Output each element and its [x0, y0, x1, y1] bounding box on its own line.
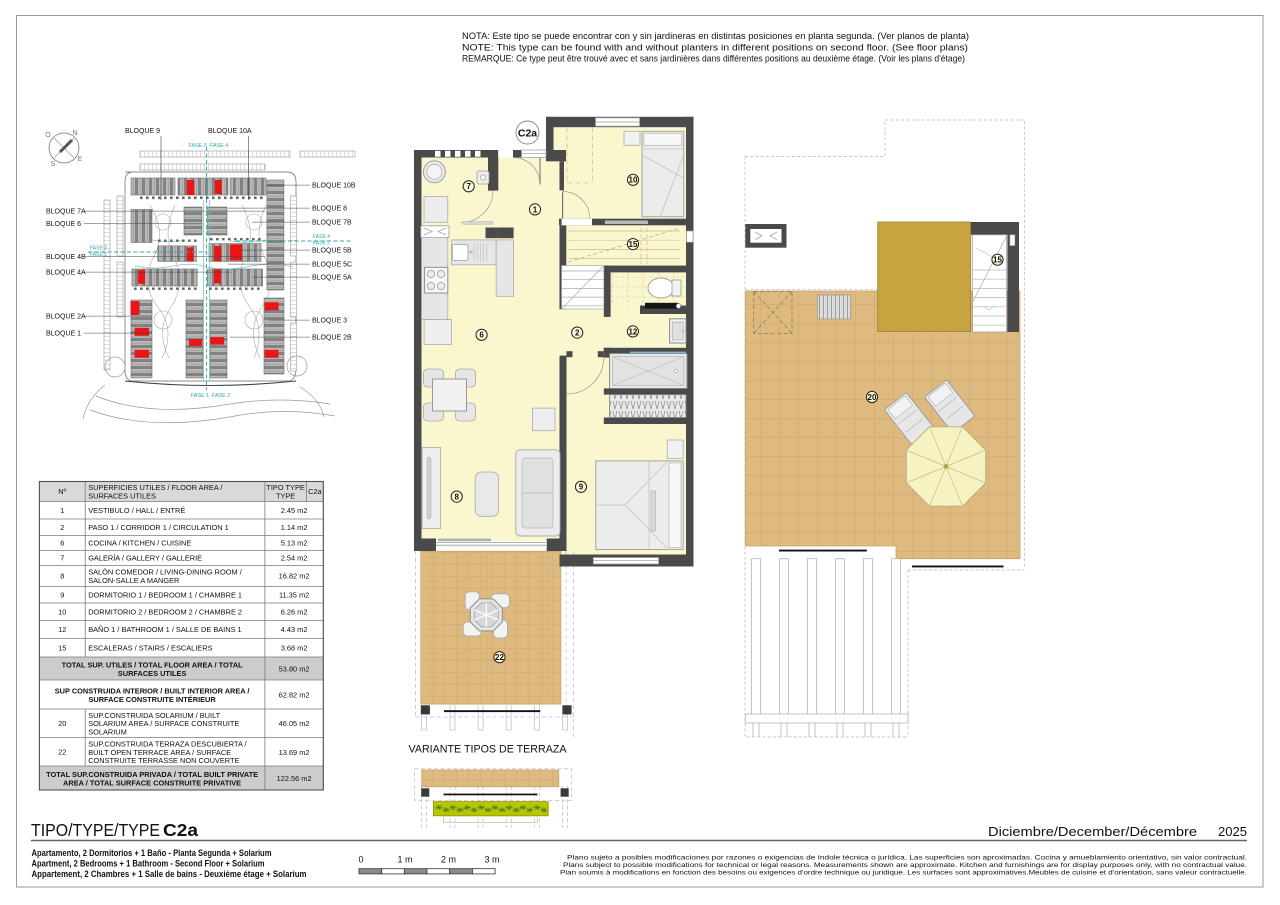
svg-text:9: 9 [60, 590, 64, 599]
svg-text:15: 15 [58, 643, 66, 652]
svg-text:C2a: C2a [163, 820, 198, 840]
svg-text:BLOQUE 10B: BLOQUE 10B [312, 183, 356, 190]
svg-text:SURFACES UTILES: SURFACES UTILES [88, 492, 156, 501]
svg-text:10: 10 [629, 176, 638, 185]
svg-text:9: 9 [579, 483, 584, 492]
svg-text:Apartamento, 2 Dormitorios + 1: Apartamento, 2 Dormitorios + 1 Baño - Pl… [32, 848, 272, 858]
svg-text:FASE 4: FASE 4 [210, 143, 228, 149]
svg-text:Plans subject to possible modi: Plans subject to possible modifications … [563, 862, 1247, 869]
svg-text:GALERÍA / GALLERY / GALLERIE: GALERÍA / GALLERY / GALLERIE [88, 554, 202, 563]
svg-text:VESTIBULO / HALL / ENTRÉ: VESTIBULO / HALL / ENTRÉ [88, 506, 185, 515]
svg-text:4.43 m2: 4.43 m2 [281, 625, 308, 634]
svg-text:5.13 m2: 5.13 m2 [281, 539, 308, 548]
svg-text:TYPE: TYPE [276, 492, 295, 501]
svg-text:Apartment, 2 Bedrooms + 1 Bath: Apartment, 2 Bedrooms + 1 Bathroom - Sec… [32, 859, 265, 869]
svg-text:11.35 m2: 11.35 m2 [279, 590, 309, 599]
svg-text:6: 6 [479, 331, 484, 340]
svg-text:CONSTRUITE TERRASSE NON COUVER: CONSTRUITE TERRASSE NON COUVERTE [88, 756, 239, 765]
svg-text:53.80 m2: 53.80 m2 [279, 665, 310, 674]
svg-text:Diciembre/December/Décembre: Diciembre/December/Décembre [988, 824, 1197, 839]
svg-text:10: 10 [58, 607, 66, 616]
svg-text:Nº: Nº [58, 487, 66, 496]
svg-text:BLOQUE 7A: BLOQUE 7A [46, 209, 86, 216]
svg-text:O: O [45, 132, 51, 139]
svg-text:2 m: 2 m [441, 855, 456, 865]
svg-text:3 m: 3 m [484, 855, 499, 865]
svg-text:15: 15 [993, 256, 1002, 265]
svg-text:BLOQUE 8: BLOQUE 8 [312, 206, 347, 213]
svg-text:BLOQUE 7B: BLOQUE 7B [312, 220, 352, 227]
svg-text:8: 8 [454, 493, 459, 502]
svg-text:E: E [78, 156, 83, 163]
svg-text:DORMITORIO 1 / BEDROOM 1 / CHA: DORMITORIO 1 / BEDROOM 1 / CHAMBRE 1 [88, 590, 242, 599]
svg-text:ESCALERAS / STAIRS / ESCALIERS: ESCALERAS / STAIRS / ESCALIERS [88, 643, 212, 652]
svg-text:20: 20 [868, 393, 877, 402]
svg-text:12: 12 [58, 625, 66, 634]
svg-text:FASE 2: FASE 2 [313, 241, 330, 247]
svg-text:1 m: 1 m [397, 855, 412, 865]
svg-text:FASE 3: FASE 3 [189, 143, 207, 149]
svg-text:SURFACES UTILES: SURFACES UTILES [118, 669, 187, 678]
svg-text:COCINA / KITCHEN / CUISINE: COCINA / KITCHEN / CUISINE [88, 539, 191, 548]
svg-text:122.56 m2: 122.56 m2 [277, 774, 312, 783]
svg-text:SALON-SALLE A MANGER: SALON-SALLE A MANGER [88, 576, 179, 585]
svg-text:DORMITORIO 2 / BEDROOM 2 / CHA: DORMITORIO 2 / BEDROOM 2 / CHAMBRE 2 [88, 607, 242, 616]
svg-text:22: 22 [495, 653, 504, 662]
svg-text:FASE 1: FASE 1 [90, 252, 107, 258]
svg-text:6: 6 [60, 539, 64, 548]
svg-text:0: 0 [358, 855, 363, 865]
svg-text:FASE 2: FASE 2 [212, 393, 230, 399]
svg-text:BLOQUE 5A: BLOQUE 5A [312, 275, 352, 282]
svg-text:Plan soumis à modifications en: Plan soumis à modifications en fonction … [560, 870, 1247, 877]
svg-text:15: 15 [629, 240, 638, 249]
svg-text:SURFACE CONSTRUITE INTÉRIEUR: SURFACE CONSTRUITE INTÉRIEUR [88, 695, 216, 704]
svg-text:C2a: C2a [518, 127, 537, 139]
svg-text:S: S [51, 161, 56, 168]
svg-text:Plano sujeto a posibles modifi: Plano sujeto a posibles modificaciones p… [567, 855, 1247, 862]
svg-text:1: 1 [60, 506, 64, 515]
svg-text:NOTE: This type can be found w: NOTE: This type can be found with and wi… [462, 43, 968, 54]
svg-text:2: 2 [60, 523, 64, 532]
svg-text:VARIANTE TIPOS DE TERRAZA: VARIANTE TIPOS DE TERRAZA [409, 744, 567, 756]
svg-text:1.14 m2: 1.14 m2 [281, 523, 308, 532]
svg-text:62.82 m2: 62.82 m2 [279, 691, 310, 700]
svg-text:13.69 m2: 13.69 m2 [279, 748, 310, 757]
svg-text:BLOQUE 5C: BLOQUE 5C [312, 262, 352, 269]
svg-text:7: 7 [466, 182, 471, 191]
svg-text:16.82 m2: 16.82 m2 [279, 572, 310, 581]
svg-text:BLOQUE 4B: BLOQUE 4B [46, 254, 86, 261]
svg-text:NOTA: Este tipo se puede encon: NOTA: Este tipo se puede encontrar con y… [462, 31, 969, 42]
svg-text:BAÑO 1 / BATHROOM 1 / SALLE DE: BAÑO 1 / BATHROOM 1 / SALLE DE BAINS 1 [88, 625, 241, 634]
svg-text:7: 7 [60, 554, 64, 563]
svg-text:2025: 2025 [1218, 824, 1247, 839]
svg-text:1: 1 [533, 205, 538, 214]
svg-text:PASO 1 / CORRIDOR 1 / CIRCULAT: PASO 1 / CORRIDOR 1 / CIRCULATION 1 [88, 523, 229, 532]
svg-text:BLOQUE 1: BLOQUE 1 [46, 331, 81, 338]
svg-text:8: 8 [60, 572, 64, 581]
svg-text:BLOQUE 10A: BLOQUE 10A [208, 128, 252, 135]
svg-text:FASE 1: FASE 1 [191, 393, 209, 399]
svg-text:REMARQUE: Ce type peut être tr: REMARQUE: Ce type peut être trouvé avec … [462, 54, 965, 64]
svg-text:BLOQUE 4A: BLOQUE 4A [46, 270, 86, 277]
svg-text:2.45 m2: 2.45 m2 [281, 506, 308, 515]
svg-text:BLOQUE 6: BLOQUE 6 [46, 221, 81, 228]
svg-text:FASE 4: FASE 4 [313, 234, 330, 240]
svg-text:6.26 m2: 6.26 m2 [281, 607, 308, 616]
svg-text:BLOQUE 5B: BLOQUE 5B [312, 248, 352, 255]
svg-text:SOLARIUM: SOLARIUM [88, 728, 127, 737]
svg-text:BLOQUE 3: BLOQUE 3 [312, 318, 347, 325]
svg-text:22: 22 [58, 747, 66, 756]
svg-text:C2a: C2a [308, 487, 322, 496]
svg-text:46.05 m2: 46.05 m2 [279, 719, 310, 728]
svg-text:N: N [72, 130, 77, 137]
svg-text:2.54 m2: 2.54 m2 [281, 554, 308, 563]
svg-text:FASE 3: FASE 3 [90, 246, 107, 252]
svg-text:2: 2 [575, 329, 580, 338]
svg-text:BLOQUE 9: BLOQUE 9 [125, 128, 160, 135]
svg-text:20: 20 [58, 719, 66, 728]
svg-text:TIPO/TYPE/TYPE: TIPO/TYPE/TYPE [31, 820, 160, 840]
svg-text:Appartement, 2 Chambres + 1 Sa: Appartement, 2 Chambres + 1 Salle de bai… [32, 869, 307, 879]
svg-text:AREA / TOTAL SURFACE CONSTRUIT: AREA / TOTAL SURFACE CONSTRUITE PRIVATIV… [63, 778, 241, 787]
svg-text:3.68 m2: 3.68 m2 [281, 643, 308, 652]
svg-text:12: 12 [628, 327, 637, 336]
svg-text:BLOQUE 2A: BLOQUE 2A [46, 314, 86, 321]
svg-text:BLOQUE 2B: BLOQUE 2B [312, 335, 352, 342]
